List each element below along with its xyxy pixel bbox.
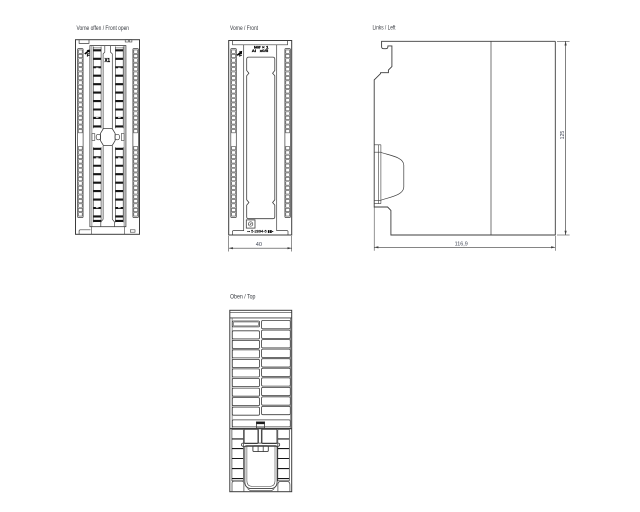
svg-text:F: F — [239, 53, 242, 58]
svg-text:X1: X1 — [105, 58, 111, 64]
svg-text:125: 125 — [560, 131, 566, 140]
svg-text:116,9: 116,9 — [455, 242, 468, 248]
svg-text:Vorne / Front: Vorne / Front — [230, 25, 258, 32]
svg-text:AI x0/5: AI x0/5 — [252, 48, 269, 53]
svg-text:Vorne offen / Front open: Vorne offen / Front open — [77, 25, 130, 32]
svg-text:Links / Left: Links / Left — [373, 25, 396, 31]
svg-text:40: 40 — [256, 242, 262, 248]
svg-text:Oben / Top: Oben / Top — [230, 293, 256, 300]
svg-text:F: F — [87, 52, 90, 57]
svg-text:•• 5-2894-6 ▮▮•: •• 5-2894-6 ▮▮• — [247, 229, 274, 233]
